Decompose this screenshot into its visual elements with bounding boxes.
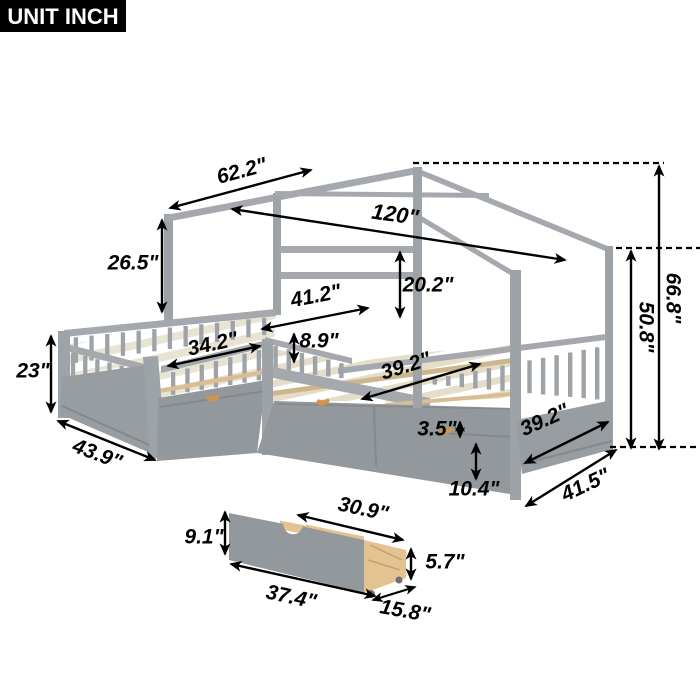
svg-text:20.2": 20.2" xyxy=(402,274,455,297)
svg-text:23": 23" xyxy=(15,360,50,383)
svg-text:10.4": 10.4" xyxy=(449,478,501,501)
svg-text:UNIT INCH: UNIT INCH xyxy=(7,4,118,29)
svg-text:66.8": 66.8" xyxy=(661,273,684,325)
svg-text:50.8": 50.8" xyxy=(634,302,657,354)
svg-text:3.5": 3.5" xyxy=(417,418,457,441)
svg-text:5.7": 5.7" xyxy=(425,551,465,574)
svg-text:26.5": 26.5" xyxy=(107,252,160,275)
svg-text:8.9": 8.9" xyxy=(299,330,339,353)
svg-text:9.1": 9.1" xyxy=(184,526,224,549)
